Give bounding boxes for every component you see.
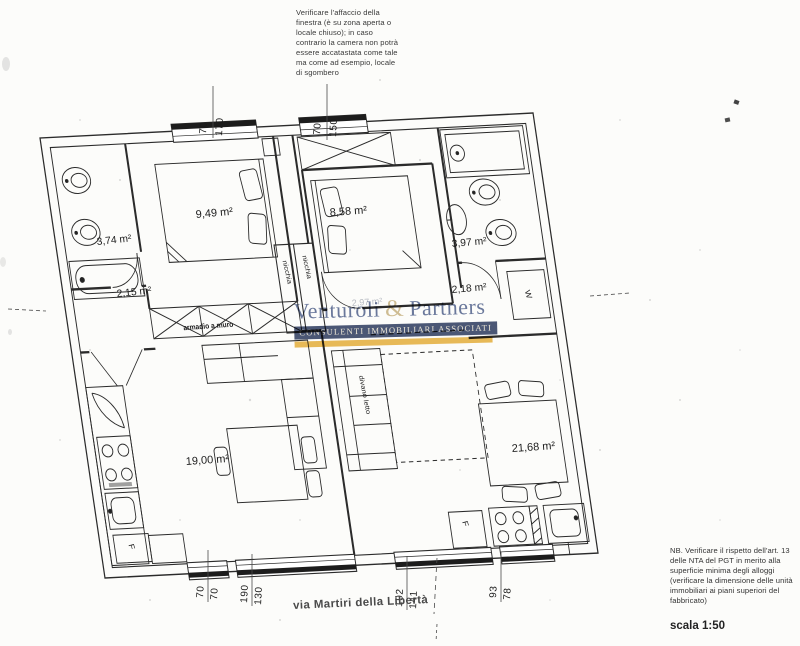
dim-bottom-4b: 78: [502, 587, 514, 600]
dimension-labels: 70 170 70 150 70 70 190 130 192 141 93 7…: [195, 117, 514, 609]
fridge-box: [448, 511, 487, 549]
fridge-label-right: F: [460, 520, 471, 528]
agency-watermark: Venturoli&Partners CONSULENTI IMMOBILIAR…: [293, 293, 497, 347]
toilet-fixture: [467, 178, 501, 206]
agency-name-left: Venturoli: [293, 296, 380, 323]
washing-machine-label: W: [523, 289, 535, 301]
window-93: [500, 544, 555, 564]
dim-bottom-1a: 70: [195, 585, 207, 598]
ampersand-glyph: &: [380, 296, 410, 323]
dim-top-2b: 150: [328, 118, 340, 137]
sink-fixture: [105, 492, 144, 530]
dim-bottom-2a: 190: [239, 584, 251, 603]
nb-note: NB. Verificare il rispetto dell'art. 13 …: [670, 546, 798, 606]
sofa-bed: [331, 344, 489, 471]
dim-top-1a: 70: [198, 121, 210, 134]
scale-label: scala 1:50: [670, 620, 725, 632]
room-label-left-living: 19,00 m²: [185, 453, 229, 468]
fridge-label-left: F: [127, 543, 138, 551]
scan-artifacts: [59, 79, 741, 621]
right-bathroom-fixtures: [434, 126, 540, 249]
kitchen-shelf-leaf: [92, 392, 125, 429]
top-wardrobe-box: [297, 132, 395, 170]
dim-top-1b: 170: [214, 117, 226, 136]
plan-labels: armadio a muro nicchia nicchia divano le…: [85, 244, 568, 551]
washbasin-fixture: [445, 204, 469, 235]
shower-fixture: [440, 126, 530, 178]
room-label-left-bathroom: 3,74 m²: [96, 233, 132, 248]
room-label-right-bedroom: 8,58 m²: [329, 204, 367, 219]
room-label-left-bedroom: 9,49 m²: [195, 206, 234, 221]
agency-name: Venturoli&Partners: [293, 293, 496, 325]
niche-label-2: nicchia: [300, 255, 313, 280]
dim-bottom-1b: 70: [209, 587, 221, 600]
stove-fixture: [97, 436, 138, 490]
wardrobe-label: armadio a muro: [182, 319, 234, 332]
toilet-fixture: [60, 167, 92, 194]
room-label-right-bathroom: 3,97 m²: [451, 236, 487, 250]
room-label-right-living: 21,68 m²: [511, 440, 555, 455]
left-kitchen: [86, 384, 187, 566]
left-bed: [152, 138, 295, 262]
window-warning-note: Verificare l'affaccio della finestra (è …: [296, 8, 402, 78]
dim-bottom-2b: 130: [253, 586, 265, 605]
bidet-fixture: [484, 219, 518, 247]
agency-name-right: Partners: [409, 294, 486, 321]
sofa-bed-label: divano letto: [357, 375, 373, 415]
right-bed: [311, 176, 421, 273]
dim-top-2a: 70: [312, 122, 324, 135]
window-192: [394, 547, 493, 569]
stove-fixture: [489, 506, 535, 546]
dim-bottom-4a: 93: [488, 585, 500, 598]
fold-out-bed-outline: [381, 350, 489, 463]
nightstand: [262, 138, 280, 156]
window-190: [235, 554, 356, 577]
counter-strip: [529, 506, 543, 544]
